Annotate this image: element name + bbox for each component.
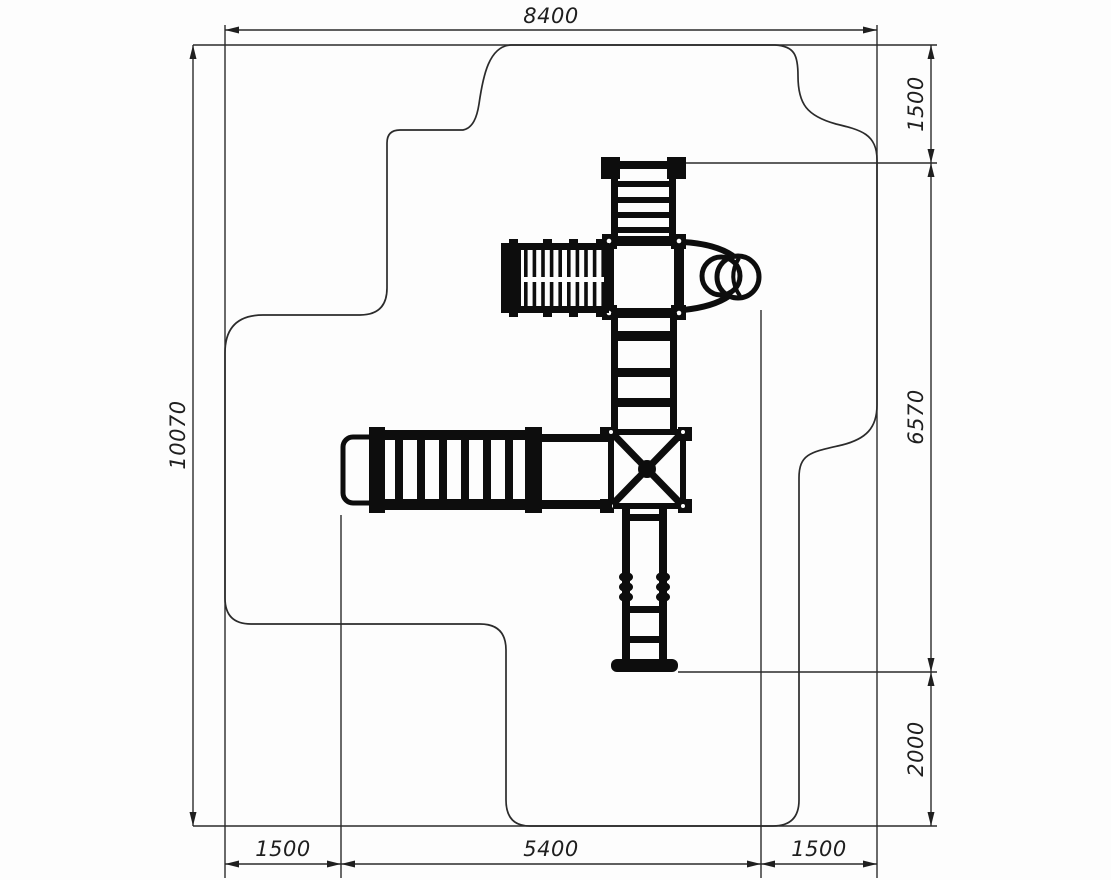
arrow-down-icon <box>928 149 935 163</box>
arrow-right-icon <box>327 861 341 868</box>
top-ladder <box>601 157 686 243</box>
dim-label-right-top: 1500 <box>904 76 928 131</box>
lower-climber <box>611 506 678 672</box>
arrow-down-icon <box>928 658 935 672</box>
horizontal-climber <box>501 239 609 317</box>
climber-bars <box>524 250 605 306</box>
dim-label-bottom-center: 5400 <box>523 837 578 861</box>
extension-lines <box>193 25 937 878</box>
arrow-left-icon <box>225 27 239 34</box>
dim-right-top: 1500 <box>904 45 935 163</box>
bridge-rungs <box>611 313 677 433</box>
arrow-up-icon <box>928 45 935 59</box>
center-tower-cross <box>600 427 692 513</box>
dim-width-total: 8400 <box>225 4 877 34</box>
playground-structure <box>343 157 759 672</box>
dim-label-height-total: 10070 <box>166 400 190 469</box>
arrow-right-icon <box>863 27 877 34</box>
dim-bottom-left: 1500 <box>225 837 341 868</box>
dim-bottom-right: 1500 <box>761 837 877 868</box>
arrow-left-icon <box>341 861 355 868</box>
technical-drawing-page: 8400 10070 1500 6570 2000 1500 5400 <box>0 0 1111 880</box>
side-arm-ladder <box>343 427 612 513</box>
dim-right-bottom: 2000 <box>904 672 935 826</box>
arrow-up-icon <box>928 163 935 177</box>
dim-label-bottom-left: 1500 <box>255 837 310 861</box>
dim-label-right-bottom: 2000 <box>904 721 928 776</box>
dim-right-middle: 6570 <box>904 163 935 672</box>
upper-tower <box>602 234 686 320</box>
arrow-down-icon <box>928 812 935 826</box>
dim-label-bottom-right: 1500 <box>791 837 846 861</box>
tube-slide <box>683 242 759 310</box>
dim-label-right-middle: 6570 <box>904 389 928 444</box>
arrow-right-icon <box>747 861 761 868</box>
arrow-right-icon <box>863 861 877 868</box>
dim-height-total: 10070 <box>166 45 197 826</box>
arrow-up-icon <box>190 45 197 59</box>
dim-label-width-total: 8400 <box>523 4 578 28</box>
arrow-left-icon <box>761 861 775 868</box>
plan-drawing: 8400 10070 1500 6570 2000 1500 5400 <box>0 0 1111 880</box>
dim-bottom-center: 5400 <box>341 837 761 868</box>
arrow-down-icon <box>190 812 197 826</box>
arrow-left-icon <box>225 861 239 868</box>
arrow-up-icon <box>928 672 935 686</box>
